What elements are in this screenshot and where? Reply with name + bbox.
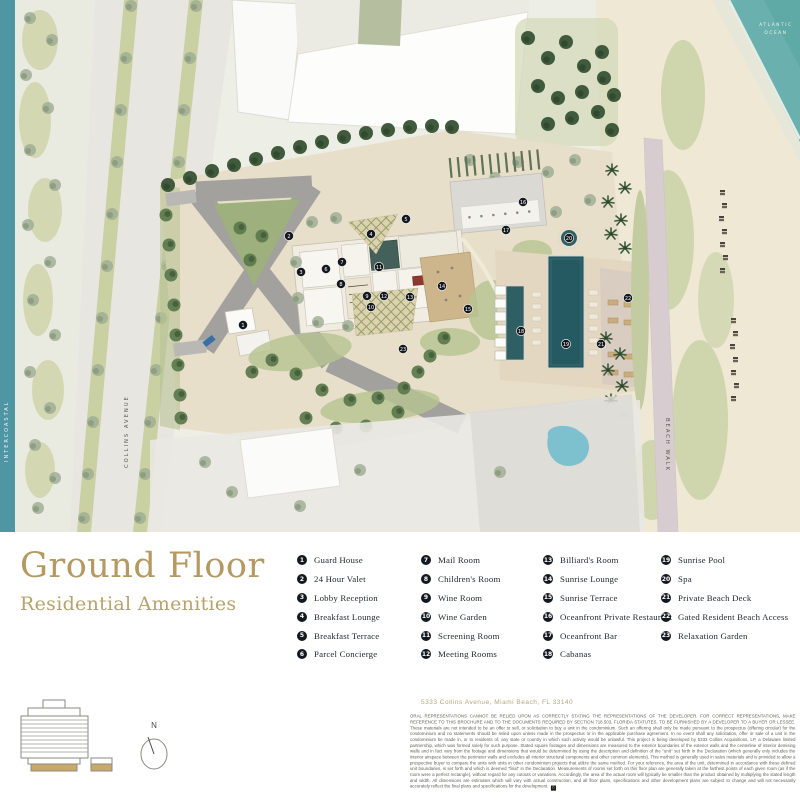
svg-text:4: 4 [369, 232, 372, 238]
map-marker: 3 [296, 267, 305, 276]
legend-item-label: Meeting Rooms [438, 649, 497, 659]
map-marker: 7 [337, 257, 346, 266]
svg-text:2: 2 [287, 234, 290, 240]
legend-item-label: Gated Resident Beach Access [678, 612, 788, 622]
map-marker: 1 [238, 320, 247, 329]
legend-item: 6Parcel Concierge [297, 645, 380, 664]
svg-text:10: 10 [368, 305, 374, 311]
collins-avenue-label: COLLINS AVENUE [124, 395, 130, 468]
legend-item-number-badge: 1 [297, 555, 307, 565]
legend-item-number-badge: 19 [661, 555, 671, 565]
svg-text:13: 13 [407, 295, 413, 301]
map-marker: 2 [284, 231, 293, 240]
legend-item: 21Private Beach Deck [661, 589, 788, 608]
legend-item-number-badge: 14 [543, 574, 553, 584]
project-address: 5333 Collins Avenue, Miami Beach, FL 331… [421, 699, 573, 706]
legend-column-2: 7Mail Room8Children's Room9Wine Room10Wi… [421, 551, 501, 664]
legend-item: 18Cabanas [543, 645, 672, 664]
legend-item-number-badge: 21 [661, 593, 671, 603]
legend-item-number-badge: 6 [297, 649, 307, 659]
legend-item-number-badge: 5 [297, 631, 307, 641]
legend-item: 8Children's Room [421, 570, 501, 589]
map-marker: 4 [366, 229, 375, 238]
legend-item: 17Oceanfront Bar [543, 626, 672, 645]
legend-item-number-badge: 3 [297, 593, 307, 603]
map-marker: 8 [336, 279, 345, 288]
atlantic-label-line2: OCEAN [764, 30, 787, 36]
svg-text:19: 19 [563, 342, 569, 348]
legend-item-label: Oceanfront Private Restaurant [560, 612, 672, 622]
cabana-pool [506, 286, 524, 360]
building-elevation-icon [21, 700, 112, 771]
legend-item-number-badge: 18 [543, 649, 553, 659]
svg-text:23: 23 [400, 347, 406, 353]
legend-item-label: Relaxation Garden [678, 631, 748, 641]
legend-item-number-badge: 15 [543, 593, 553, 603]
svg-text:21: 21 [598, 342, 604, 348]
map-marker: 13 [405, 292, 414, 301]
svg-text:16: 16 [520, 200, 526, 206]
map-marker: 15 [463, 304, 472, 313]
legend-column-1: 1Guard House224 Hour Valet3Lobby Recepti… [297, 551, 380, 664]
map-marker: 10 [366, 302, 375, 311]
highlighted-annex-floor [91, 764, 112, 771]
legend-item-number-badge: 17 [543, 631, 553, 641]
atlantic-label-line1: ATLANTIC [759, 22, 793, 28]
svg-text:5: 5 [404, 217, 407, 223]
legend-item-number-badge: 4 [297, 612, 307, 622]
neighbor-building-south [240, 428, 340, 498]
legend-item-label: Lobby Reception [314, 593, 378, 603]
legend-item: 19Sunrise Pool [661, 551, 788, 570]
map-marker: 5 [401, 214, 410, 223]
map-marker: 18 [516, 326, 525, 335]
legend-item-number-badge: 12 [421, 649, 431, 659]
legend-item-number-badge: 9 [421, 593, 431, 603]
legend-item-label: Mail Room [438, 555, 480, 565]
legal-disclaimer: ORAL REPRESENTATIONS CANNOT BE RELIED UP… [410, 714, 795, 791]
svg-text:14: 14 [439, 284, 445, 290]
legend-item-label: 24 Hour Valet [314, 574, 366, 584]
svg-text:11: 11 [376, 265, 382, 271]
svg-text:17: 17 [503, 228, 509, 234]
legend-item: 9Wine Room [421, 589, 501, 608]
svg-text:3: 3 [299, 270, 302, 276]
legend-item: 14Sunrise Lounge [543, 570, 672, 589]
site-plan-map: ATLANTIC OCEAN INTERCOASTAL COLLINS AVEN… [0, 0, 800, 532]
legend-item-label: Parcel Concierge [314, 649, 377, 659]
svg-text:22: 22 [625, 296, 631, 302]
svg-text:7: 7 [340, 260, 343, 266]
legend-column-4: 19Sunrise Pool20Spa21Private Beach Deck2… [661, 551, 788, 645]
footer-diagrams: N [15, 690, 195, 795]
legend-item: 23Relaxation Garden [661, 626, 788, 645]
map-marker: 20 [564, 233, 573, 242]
legend-item-label: Sunrise Terrace [560, 593, 618, 603]
legend-item: 10Wine Garden [421, 607, 501, 626]
compass: N [141, 721, 167, 769]
legend-item: 12Meeting Rooms [421, 645, 501, 664]
svg-text:20: 20 [566, 236, 572, 242]
neighbor-roof-garden [358, 0, 402, 46]
legend-item: 11Screening Room [421, 626, 501, 645]
legend-column-3: 13Billiard's Room14Sunrise Lounge15Sunri… [543, 551, 672, 664]
south-parcel-east [470, 394, 640, 532]
legend-item: 4Breakfast Lounge [297, 607, 380, 626]
legend-item-number-badge: 2 [297, 574, 307, 584]
legend-item-label: Children's Room [438, 574, 501, 584]
legend-item: 20Spa [661, 570, 788, 589]
legend-item-label: Breakfast Lounge [314, 612, 380, 622]
map-marker: 11 [374, 262, 383, 271]
site-plan-rendering: ATLANTIC OCEAN INTERCOASTAL COLLINS AVEN… [0, 0, 800, 532]
intercoastal-label: INTERCOASTAL [4, 401, 10, 462]
map-marker: 19 [561, 339, 570, 348]
map-marker: 22 [623, 293, 632, 302]
legend-item-number-badge: 13 [543, 555, 553, 565]
legend-item-label: Breakfast Terrace [314, 631, 379, 641]
legend-item: 22Gated Resident Beach Access [661, 607, 788, 626]
legend-item-label: Screening Room [438, 631, 500, 641]
legend-item-label: Spa [678, 574, 692, 584]
legend-item: 7Mail Room [421, 551, 501, 570]
legend-item-number-badge: 11 [421, 631, 431, 641]
legend-item-label: Oceanfront Bar [560, 631, 617, 641]
equal-housing-icon: ⌂ [551, 786, 556, 791]
svg-text:12: 12 [381, 294, 387, 300]
map-marker: 12 [379, 291, 388, 300]
svg-text:18: 18 [518, 329, 524, 335]
map-marker: 23 [398, 344, 407, 353]
svg-text:15: 15 [465, 307, 471, 313]
legend-item-number-badge: 22 [661, 612, 671, 622]
page-title: Ground Floor [20, 548, 280, 585]
sunrise-pool [548, 256, 584, 368]
map-marker: 14 [437, 281, 446, 290]
legend-title-block: Ground Floor Residential Amenities [20, 548, 280, 615]
legal-disclaimer-text: ORAL REPRESENTATIONS CANNOT BE RELIED UP… [410, 715, 795, 790]
legend-item-label: Guard House [314, 555, 363, 565]
page-subtitle: Residential Amenities [20, 594, 280, 615]
legend-item: 5Breakfast Terrace [297, 626, 380, 645]
legend-item-number-badge: 10 [421, 612, 431, 622]
legend-item: 3Lobby Reception [297, 589, 380, 608]
map-marker: 16 [518, 197, 527, 206]
legend-item-label: Cabanas [560, 649, 591, 659]
legend-item: 13Billiard's Room [543, 551, 672, 570]
map-marker: 6 [321, 264, 330, 273]
compass-north-label: N [151, 721, 157, 730]
brochure-page: ATLANTIC OCEAN INTERCOASTAL COLLINS AVEN… [0, 0, 800, 800]
legend-item-label: Billiard's Room [560, 555, 619, 565]
legend-item-label: Wine Garden [438, 612, 487, 622]
svg-text:9: 9 [365, 294, 368, 300]
map-marker: 17 [501, 225, 510, 234]
svg-text:1: 1 [241, 323, 244, 329]
building-key-diagram: N [15, 690, 195, 795]
legend-item-number-badge: 23 [661, 631, 671, 641]
legend-item-number-badge: 20 [661, 574, 671, 584]
beach-walk-label: BEACH WALK [664, 418, 670, 472]
legend-item-label: Sunrise Pool [678, 555, 725, 565]
highlighted-ground-floor [31, 764, 77, 771]
legend-item-label: Sunrise Lounge [560, 574, 618, 584]
svg-text:8: 8 [339, 282, 342, 288]
legend-item: 16Oceanfront Private Restaurant [543, 607, 672, 626]
legend-item-number-badge: 7 [421, 555, 431, 565]
legend-item-number-badge: 16 [543, 612, 553, 622]
legend-item-label: Private Beach Deck [678, 593, 751, 603]
map-marker: 9 [362, 291, 371, 300]
svg-text:6: 6 [324, 267, 327, 273]
legend-item: 15Sunrise Terrace [543, 589, 672, 608]
legend-item-number-badge: 8 [421, 574, 431, 584]
legend-item: 224 Hour Valet [297, 570, 380, 589]
legend-item-label: Wine Room [438, 593, 482, 603]
legend-item: 1Guard House [297, 551, 380, 570]
map-marker: 21 [596, 339, 605, 348]
